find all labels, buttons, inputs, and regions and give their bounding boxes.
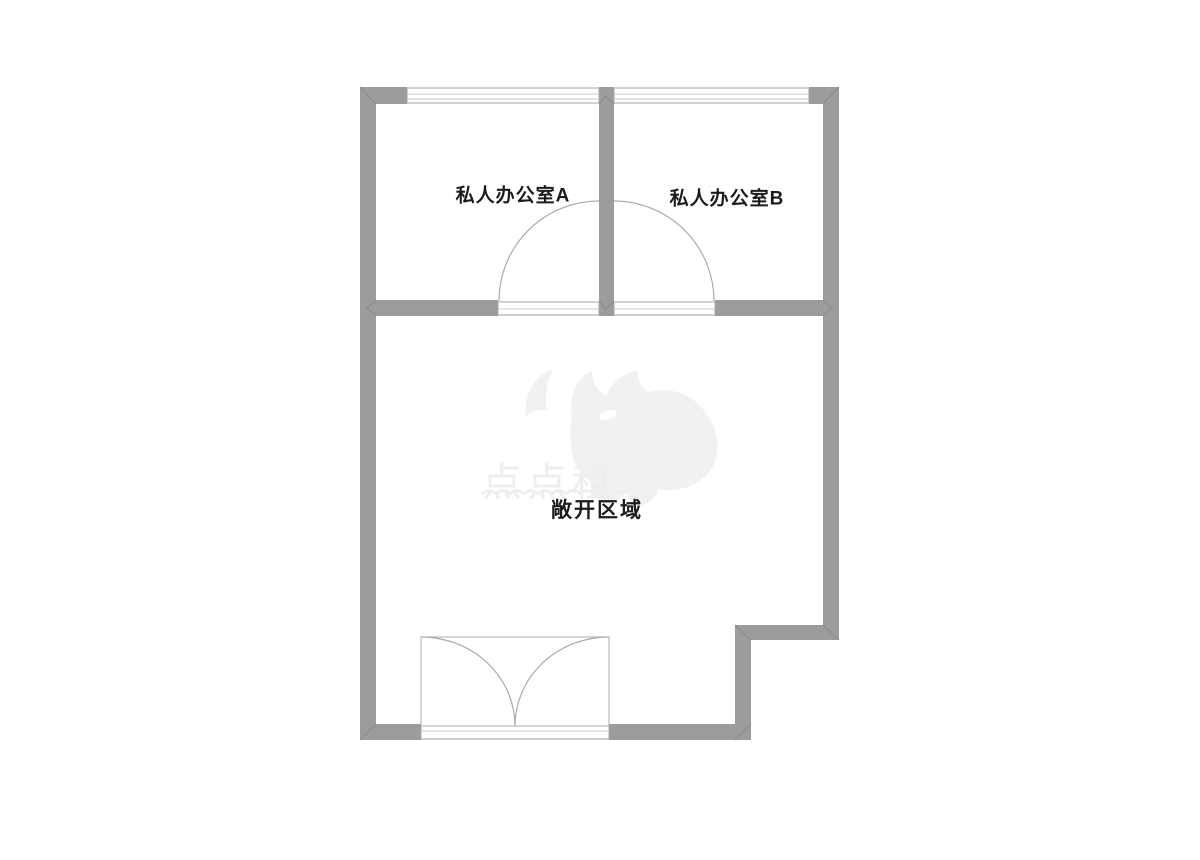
floorplan-svg [0,0,1200,860]
wall-left [360,87,376,740]
wall-step-vertical [735,625,751,740]
wall-bottom-right-segment [609,724,751,740]
door-b-arc [614,201,714,301]
wall-room-divider-right [715,300,839,316]
entry-door-left-arc [421,637,515,726]
wall-middle-divider [599,87,614,316]
window-b [614,88,809,103]
room-label-open-area: 敞开区域 [551,494,643,524]
wall-bottom-left-segment [360,724,421,740]
window-a [407,88,599,103]
door-office-b [614,201,715,315]
window-a-frame [407,88,599,103]
floorplan-canvas: 点点租 私人办公室A 私人办公室B 敞开区域 [0,0,1200,860]
room-label-office-a: 私人办公室A [456,181,571,208]
wall-top-left-segment [360,87,407,104]
window-b-frame [614,88,809,103]
room-label-office-b: 私人办公室B [670,184,785,211]
door-a-arc [499,201,599,301]
wall-room-divider-left [360,300,498,316]
entry-threshold [421,726,609,739]
door-office-a [498,201,599,315]
wall-right [823,87,839,640]
entry-door-frame [421,637,609,726]
entry-double-door [421,637,609,739]
entry-door-right-arc [515,637,609,726]
